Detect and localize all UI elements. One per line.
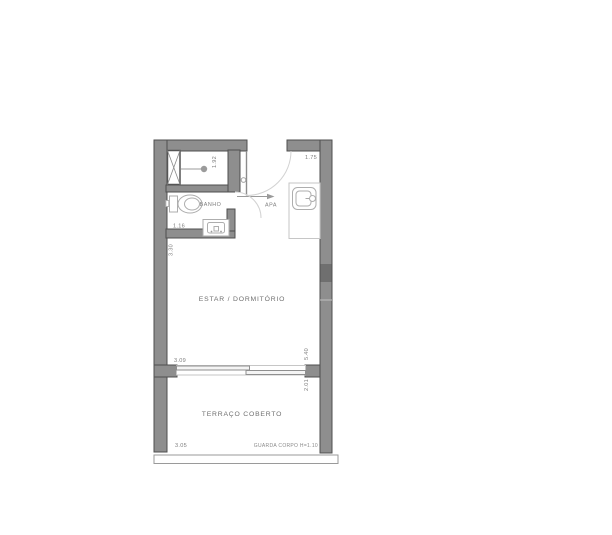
wall-left <box>154 140 167 452</box>
dim-estar-upper-height: 3.30 <box>169 244 175 256</box>
toilet-bowl-inner <box>185 198 200 210</box>
estar-room-label: ESTAR / DORMITÓRIO <box>199 294 285 303</box>
wall-bath-right <box>228 150 240 192</box>
entry-door-knob-icon <box>241 178 246 183</box>
washbasin-tap-left <box>211 231 213 233</box>
dim-banho-width: 1.16 <box>173 224 185 230</box>
shower-head-icon <box>201 166 207 172</box>
kitchen-tap-icon <box>310 196 316 202</box>
floor-plan-canvas: BANHO APA ESTAR / DORMITÓRIO TERRAÇO COB… <box>0 0 612 535</box>
wall-shower-bottom <box>166 185 228 192</box>
dim-shower-depth: 1.92 <box>212 156 218 168</box>
floor-plan-drawing: BANHO APA ESTAR / DORMITÓRIO TERRAÇO COB… <box>0 0 612 535</box>
banho-room-label: BANHO <box>200 202 222 208</box>
duct-shaft <box>168 151 181 185</box>
dim-estar-width: 3.09 <box>174 358 186 364</box>
washbasin-drain <box>214 227 219 232</box>
paper-holder <box>166 201 169 207</box>
washbasin-tap-right <box>220 231 222 233</box>
terrace-sliding-door <box>177 366 306 376</box>
dim-right-side-height: 5.40 <box>304 348 310 360</box>
labels: BANHO APA ESTAR / DORMITÓRIO TERRAÇO COB… <box>199 202 318 449</box>
wall-divider-left-stub <box>154 365 177 377</box>
shower <box>181 166 207 172</box>
wall-divider-right-stub <box>305 365 320 377</box>
guardrail-band <box>154 455 338 464</box>
wall-right-dark-band <box>321 264 332 282</box>
sliding-panel-right <box>246 371 306 375</box>
dim-terraco-width: 3.05 <box>175 443 187 449</box>
toilet-tank <box>170 196 178 212</box>
apa-room-label: APA <box>265 203 277 209</box>
entry-door-swing-arc <box>247 151 292 196</box>
terraco-room-label: TERRAÇO COBERTO <box>202 411 282 418</box>
wall-right <box>320 140 332 453</box>
entry-arrow-head-icon <box>267 194 275 199</box>
dim-terraco-height: 2.01 <box>304 379 310 391</box>
dim-entry-width: 1.75 <box>305 155 317 161</box>
kitchenette <box>289 183 320 239</box>
wall-top-left <box>154 140 247 151</box>
entry-door <box>235 151 291 218</box>
guardrail-note: GUARDA CORPO H=1.10 <box>254 443 318 449</box>
banho-door-swing-arc <box>235 192 261 218</box>
sliding-panel-left <box>177 366 250 370</box>
